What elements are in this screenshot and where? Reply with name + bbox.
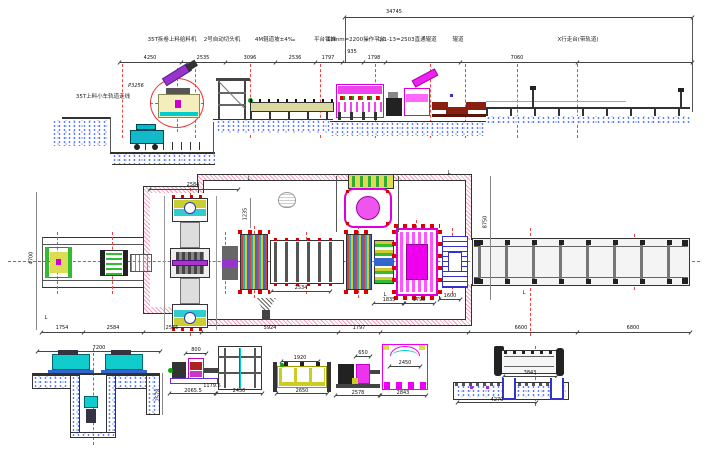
machine-part (166, 88, 190, 94)
frame-post (224, 348, 226, 388)
roller-dots (504, 351, 554, 354)
equipment-label: 4M辊道坡±4‰ (255, 38, 295, 44)
dim: 1920 (294, 356, 307, 361)
mill-core (406, 244, 428, 280)
bolt-dots (238, 230, 270, 234)
bolt-dots (238, 290, 270, 294)
pit-floor (70, 432, 116, 438)
tick (142, 330, 146, 334)
wheel-icon (152, 144, 158, 150)
drawing-sheet: 34745 35T拆卷上料给料机 2号自动切头机 4M辊道坡±4‰ 平台钢梯 1… (0, 0, 726, 451)
concrete-hatch (112, 154, 215, 165)
dim: 1798 (413, 298, 426, 303)
bolt-icon (346, 222, 349, 225)
bearing-icon (184, 312, 196, 324)
machine-part (160, 112, 198, 116)
guide-rail (164, 196, 165, 330)
concrete-hatch (52, 120, 108, 146)
corner-block (474, 278, 480, 284)
ground-line (62, 117, 111, 119)
dim: 650 (358, 351, 368, 356)
section-mark: L (248, 177, 251, 182)
straightener-rolls (240, 234, 268, 290)
dim-line (356, 356, 370, 357)
rail (504, 356, 554, 357)
runout-bench (466, 102, 486, 110)
bolt-icon (346, 190, 349, 193)
plan-view: 1235 (0, 168, 726, 343)
detail-straightener: 650 2450 2578 2843 (334, 343, 430, 451)
concrete-hatch (486, 116, 690, 124)
funnel-stem (262, 310, 270, 320)
dim-line (272, 291, 330, 292)
concrete-hatch (216, 120, 332, 133)
base-rail (336, 384, 380, 388)
machine-part (450, 94, 453, 97)
tick (379, 330, 383, 334)
rail (504, 366, 554, 367)
detail-roller-frame: 1920 2650 (270, 343, 334, 451)
post-cap (678, 88, 684, 92)
roller-legs (486, 109, 690, 116)
machine-part (338, 102, 382, 112)
corner-block (419, 345, 425, 350)
motor-cap (168, 368, 173, 373)
guide-line (486, 101, 626, 102)
pit-wall (70, 375, 80, 437)
dim-line-vertical (162, 373, 163, 415)
dim: 4270 (491, 398, 504, 403)
machine-part (100, 250, 105, 276)
dim: 2578 (157, 389, 162, 402)
dim: 2065.5 (184, 389, 202, 394)
gearbox (356, 364, 370, 384)
trolley (52, 354, 90, 370)
machine-part (68, 247, 72, 278)
tilt-arm (412, 68, 439, 87)
bearing-blocks (478, 240, 686, 245)
dim: 1797 (353, 326, 366, 331)
dim: 2650 (296, 389, 309, 394)
corner-block (474, 240, 480, 246)
runout-bench (432, 114, 486, 117)
dim: 3096 (244, 56, 257, 61)
u-support (502, 378, 516, 400)
center-mark (240, 348, 241, 388)
tick (224, 60, 228, 64)
dim-line (504, 376, 556, 377)
u-support (550, 378, 564, 400)
roll-dots (340, 96, 380, 100)
equipment-label: 35T拆卷上料给料机 (148, 38, 197, 44)
bolt-icon (470, 386, 473, 389)
machine-part (374, 258, 394, 266)
bolt-dots (394, 224, 440, 228)
pit-wall (106, 375, 116, 437)
dim-line (390, 366, 420, 367)
bolt-dots (344, 290, 374, 294)
frame-post (218, 78, 220, 120)
roller-bars (274, 242, 340, 282)
dim: 2450 (233, 389, 246, 394)
equipment-label: 辊道 (452, 38, 463, 44)
tick (384, 60, 388, 64)
end-cap (494, 348, 502, 376)
detail-drive-stand: 800 1179.5 2065.5 2450 (168, 343, 268, 451)
equipment-label: Q/1-13=2503直通辊道 (377, 38, 436, 44)
dim-line-vertical (36, 192, 37, 330)
branch-wall (398, 176, 399, 232)
dim: 7200 (93, 346, 106, 351)
tilting-platform (404, 88, 430, 116)
machine-part (352, 176, 390, 187)
shaft (204, 368, 218, 373)
roller-dots (284, 362, 320, 366)
section-mark: L (523, 291, 526, 296)
post (532, 88, 534, 108)
dim-line (374, 303, 404, 304)
machine-part (190, 371, 202, 377)
dim: 1600 (444, 294, 457, 299)
guide-rail (216, 196, 217, 330)
dim: 7060 (511, 56, 524, 61)
straightener-rolls (346, 234, 372, 290)
dim: 6600 (515, 326, 528, 331)
dim: 3843 (524, 371, 537, 376)
entry-conveyor (250, 102, 334, 112)
pit-machine (84, 396, 98, 408)
machine-part (172, 260, 208, 266)
machine-part (190, 362, 202, 370)
dim-line (440, 299, 460, 300)
dim-line (404, 303, 434, 304)
roller-bars (478, 244, 686, 280)
bolt-dots (274, 238, 340, 241)
equipment-label: X行走台(带轨道) (557, 38, 598, 44)
dim: 1754 (56, 326, 69, 331)
dim-line (38, 351, 160, 352)
post (680, 90, 682, 108)
bolt-dots (392, 230, 396, 294)
dim: 2584 (107, 326, 120, 331)
wheel-icon (134, 144, 140, 150)
dim-line-vertical (490, 176, 491, 300)
end-flange (327, 362, 331, 392)
machine-part (175, 100, 181, 108)
end-cap (556, 348, 564, 376)
machine-part (45, 247, 49, 278)
section-mark: L (45, 316, 48, 321)
loading-car-top (136, 124, 156, 130)
frame-rail (279, 382, 325, 386)
ext-line (250, 198, 251, 228)
machine-part (388, 92, 398, 98)
tick (459, 60, 463, 64)
bolt-dots (344, 230, 374, 234)
dim: 8750 (484, 216, 489, 229)
dim: 1835 (383, 298, 396, 303)
pit-machine (86, 409, 96, 423)
bearing-blocks (478, 279, 686, 284)
roller-dots (250, 99, 334, 102)
bolt-icon (386, 222, 389, 225)
machine-part (338, 86, 382, 94)
detail-pit-section: 7200 2578 (0, 343, 168, 451)
pit-wall (110, 117, 111, 154)
tick (467, 330, 471, 334)
rotary-hub (356, 196, 380, 220)
overall-dim-line (345, 17, 692, 18)
equipment-label: 2号自动切头机 (204, 38, 241, 44)
dim: 1798 (368, 56, 381, 61)
plan-dim-line (42, 332, 690, 333)
loading-car (130, 130, 164, 144)
dim: 800 (191, 348, 201, 353)
machine-part (406, 94, 428, 102)
part-label: P3256 (128, 84, 144, 89)
dim: 4250 (144, 56, 157, 61)
bolt-dots (172, 195, 208, 198)
bolt-icon (486, 386, 489, 389)
tick (82, 330, 86, 334)
tick (576, 330, 580, 334)
branch-wall (336, 176, 337, 232)
motor (172, 362, 186, 378)
arch-line (392, 350, 418, 356)
dim: 2536 (289, 56, 302, 61)
concrete-hatch (330, 122, 486, 136)
tick (314, 60, 318, 64)
dim: 2535 (166, 326, 179, 331)
tick (274, 60, 278, 64)
dim: 2535 (197, 56, 210, 61)
elevation-view: 34745 35T拆卷上料给料机 2号自动切头机 4M辊道坡±4‰ 平台钢梯 1… (0, 0, 726, 168)
shaft (130, 254, 152, 272)
channel-end (42, 237, 43, 287)
tick (337, 330, 341, 334)
bearing-icon (184, 202, 196, 214)
detail-views: 7200 2578 (0, 343, 726, 451)
dim: 2578 (352, 391, 365, 396)
pit-label: 35T上料小车轨道走线 (76, 95, 130, 101)
arm-link (180, 278, 200, 304)
bolt-icon (386, 190, 389, 193)
dim: 4700 (30, 252, 35, 265)
shaft (370, 370, 380, 374)
arm-link (180, 222, 200, 248)
elevation-dim-line (120, 62, 692, 63)
dim: 1179.5 (203, 384, 221, 389)
trolley-top (58, 350, 78, 355)
machine-part (222, 259, 238, 267)
machine-legs (338, 112, 382, 120)
trolley-top (111, 350, 131, 355)
dim: 6800 (627, 326, 640, 331)
tick (341, 60, 345, 64)
frame-post (244, 78, 246, 120)
shear-unit (386, 98, 402, 116)
post-cap (530, 86, 536, 90)
machine-part (56, 259, 61, 265)
dim: 5924 (264, 326, 277, 331)
dim: 1235 (244, 208, 249, 221)
tick (362, 60, 366, 64)
corner-block (682, 278, 688, 284)
machine-feet (384, 382, 426, 390)
dim: 2534 (295, 286, 308, 291)
stamp-mark (278, 192, 296, 208)
corner-block (383, 345, 389, 350)
centerline (122, 64, 123, 138)
trolley (105, 354, 143, 370)
ext-line (692, 17, 693, 112)
machine-part (123, 250, 128, 276)
pit-wall (213, 122, 214, 154)
dim: 2843 (397, 391, 410, 396)
section-mark: L (448, 171, 451, 176)
dim: 2450 (399, 361, 412, 366)
dim: 935 (347, 50, 357, 55)
machine-part (106, 251, 122, 275)
machine-part (448, 252, 462, 272)
dim-line (150, 189, 238, 190)
dim-line (186, 353, 206, 354)
dim: 2584 (187, 183, 200, 188)
detail-roller-table: 3843 4270 (450, 343, 610, 451)
dim: 1797 (322, 56, 335, 61)
frame-post (254, 348, 256, 388)
corner-block (682, 240, 688, 246)
overall-dim: 34745 (386, 10, 402, 15)
roll-icon (280, 363, 284, 367)
